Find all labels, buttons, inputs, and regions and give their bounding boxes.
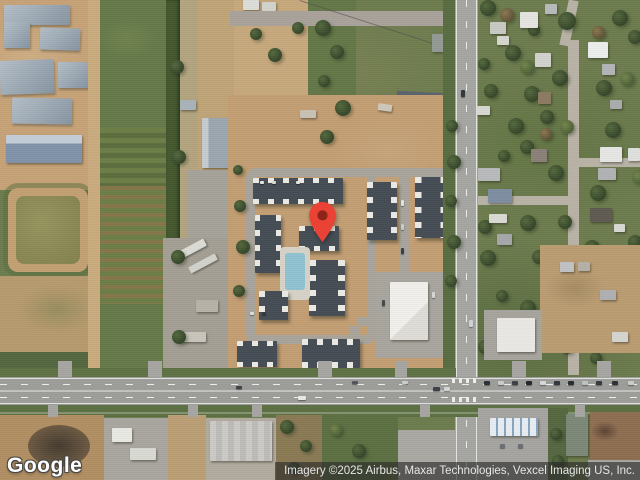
parked-car bbox=[401, 248, 404, 254]
building-under-construction bbox=[0, 59, 55, 95]
house-roof bbox=[490, 22, 506, 34]
car bbox=[498, 381, 504, 385]
tree bbox=[300, 440, 312, 452]
tree bbox=[171, 250, 185, 264]
house-roof bbox=[600, 147, 622, 162]
tree bbox=[478, 58, 490, 70]
apartment-building-roof bbox=[309, 260, 345, 316]
road-edge-line bbox=[0, 378, 640, 379]
shed-roof bbox=[180, 100, 196, 110]
tree bbox=[320, 130, 334, 144]
tree bbox=[558, 215, 572, 229]
fuel-pump bbox=[500, 444, 505, 448]
tree bbox=[445, 195, 457, 207]
car bbox=[540, 381, 546, 385]
crop-rows bbox=[100, 128, 168, 188]
dirt-lot bbox=[168, 415, 206, 480]
warehouse-roof bbox=[210, 421, 272, 461]
shed-roof bbox=[612, 332, 628, 342]
farm-building bbox=[262, 2, 276, 11]
tree bbox=[268, 48, 282, 62]
tree bbox=[352, 444, 366, 458]
tree bbox=[496, 290, 508, 302]
commercial-building-roof bbox=[566, 414, 588, 456]
fuel-canopy bbox=[490, 418, 538, 436]
tree bbox=[250, 28, 262, 40]
parked-car bbox=[272, 181, 276, 184]
construction-material bbox=[300, 110, 316, 118]
tree bbox=[330, 424, 342, 436]
house-roof bbox=[497, 36, 509, 45]
tree bbox=[234, 200, 246, 212]
tree bbox=[500, 8, 514, 22]
fuel-pump bbox=[518, 444, 523, 448]
lane-dashes bbox=[0, 397, 640, 398]
parked-car bbox=[262, 312, 266, 315]
tree bbox=[484, 84, 498, 98]
commercial-building-roof bbox=[590, 412, 640, 460]
house-roof bbox=[477, 106, 490, 115]
tree bbox=[292, 22, 304, 34]
tree bbox=[498, 150, 510, 162]
tree bbox=[447, 155, 461, 169]
clubhouse-roof bbox=[259, 291, 288, 320]
house-roof bbox=[478, 168, 500, 181]
parked-car bbox=[250, 312, 254, 315]
parked-car bbox=[260, 181, 264, 184]
tree bbox=[447, 235, 461, 249]
car bbox=[484, 381, 490, 385]
tree bbox=[612, 10, 628, 26]
car bbox=[352, 381, 358, 384]
attribution-text: Imagery ©2025 Airbus, Maxar Technologies… bbox=[284, 465, 635, 477]
tree bbox=[632, 170, 640, 184]
shed-roof bbox=[196, 300, 218, 312]
house-roof bbox=[538, 92, 551, 104]
apartment-building-roof bbox=[255, 215, 281, 273]
driveway bbox=[512, 361, 526, 378]
commercial-building-roof bbox=[497, 318, 535, 352]
driveway bbox=[318, 361, 332, 378]
pond-water bbox=[16, 196, 80, 264]
driveway bbox=[148, 361, 162, 378]
crosswalk bbox=[452, 397, 480, 402]
house-roof bbox=[602, 64, 615, 75]
parked-car bbox=[401, 200, 404, 206]
tree bbox=[318, 75, 330, 87]
tree bbox=[550, 428, 562, 440]
tree bbox=[233, 285, 245, 297]
driveway bbox=[48, 405, 58, 417]
tree bbox=[620, 72, 634, 86]
map-pin-icon[interactable] bbox=[309, 202, 336, 242]
driveway bbox=[252, 405, 262, 417]
imagery-attribution: Imagery ©2025 Airbus, Maxar Technologies… bbox=[275, 462, 640, 480]
farm-field bbox=[100, 0, 168, 130]
industrial-structure bbox=[600, 290, 616, 300]
apartment-building-roof bbox=[367, 182, 397, 240]
house-roof bbox=[610, 100, 622, 109]
tree bbox=[233, 165, 243, 175]
crop-rows bbox=[100, 186, 168, 306]
parked-car bbox=[401, 224, 404, 230]
tree bbox=[280, 420, 294, 434]
car bbox=[444, 387, 450, 391]
satellite-map-canvas[interactable]: Google Imagery ©2025 Airbus, Maxar Techn… bbox=[0, 0, 640, 480]
tree bbox=[446, 120, 458, 132]
driveway bbox=[420, 405, 430, 417]
tree bbox=[480, 250, 496, 266]
house-roof bbox=[598, 168, 616, 180]
industrial-structure bbox=[560, 262, 574, 272]
small-building-roof bbox=[112, 428, 132, 442]
driveway bbox=[58, 361, 72, 378]
farm-building bbox=[243, 0, 259, 10]
tree bbox=[505, 45, 521, 61]
crosswalk bbox=[452, 378, 480, 383]
house-roof bbox=[628, 148, 640, 161]
parked-car bbox=[432, 292, 435, 298]
house-roof bbox=[535, 53, 551, 67]
car bbox=[628, 381, 634, 385]
tree bbox=[508, 118, 524, 134]
car bbox=[236, 386, 242, 389]
commercial-building-roof bbox=[390, 282, 428, 340]
tree bbox=[520, 215, 536, 231]
road-edge-line bbox=[0, 403, 640, 404]
car bbox=[461, 90, 465, 97]
car bbox=[402, 381, 408, 384]
tree bbox=[592, 26, 605, 39]
dirt-field bbox=[0, 276, 96, 360]
house-roof bbox=[614, 224, 625, 232]
tree bbox=[590, 185, 606, 201]
industrial-structure bbox=[578, 262, 590, 271]
car bbox=[433, 387, 440, 391]
car bbox=[554, 381, 560, 385]
warehouse-roof bbox=[202, 118, 228, 168]
tree bbox=[480, 0, 496, 16]
car bbox=[512, 381, 518, 385]
tree bbox=[628, 30, 640, 44]
building-under-construction bbox=[4, 22, 30, 48]
building-under-construction bbox=[12, 97, 72, 124]
google-logo[interactable]: Google bbox=[7, 454, 82, 478]
car bbox=[469, 320, 473, 327]
tree bbox=[172, 330, 186, 344]
building-under-construction bbox=[40, 27, 81, 50]
driveway bbox=[575, 405, 585, 417]
house-roof bbox=[497, 234, 512, 245]
tree bbox=[552, 70, 568, 86]
tree bbox=[520, 60, 534, 74]
building-under-construction bbox=[58, 62, 88, 88]
long-gray-building bbox=[6, 135, 82, 163]
driveway bbox=[395, 361, 407, 378]
tree bbox=[605, 122, 621, 138]
swimming-pool bbox=[285, 253, 305, 290]
tree bbox=[558, 12, 576, 30]
parked-car bbox=[296, 181, 300, 184]
tree bbox=[335, 100, 351, 116]
car bbox=[568, 381, 574, 385]
tree bbox=[330, 45, 344, 59]
dirt-track bbox=[88, 0, 100, 378]
house-roof bbox=[489, 214, 507, 223]
tree bbox=[315, 20, 331, 36]
tree bbox=[170, 60, 184, 74]
tree bbox=[596, 80, 612, 96]
tree bbox=[540, 128, 552, 140]
car bbox=[596, 381, 602, 385]
car bbox=[612, 381, 618, 385]
center-line bbox=[0, 390, 640, 392]
car bbox=[526, 381, 532, 385]
small-building-roof bbox=[130, 448, 156, 460]
driveway bbox=[597, 361, 611, 378]
parked-car bbox=[382, 300, 385, 306]
driveway bbox=[188, 405, 198, 417]
house-roof bbox=[520, 12, 538, 28]
house-roof bbox=[545, 4, 557, 14]
tree bbox=[445, 275, 457, 287]
tree bbox=[172, 150, 186, 164]
car bbox=[582, 381, 588, 385]
apartment-building-roof bbox=[237, 341, 277, 367]
tree bbox=[540, 110, 554, 124]
tree bbox=[548, 165, 564, 181]
house-roof bbox=[488, 189, 512, 203]
car bbox=[298, 396, 306, 400]
house-roof bbox=[590, 208, 612, 222]
tree bbox=[560, 120, 574, 134]
tree bbox=[236, 240, 250, 254]
house-roof bbox=[588, 42, 608, 58]
house-roof bbox=[531, 149, 547, 162]
